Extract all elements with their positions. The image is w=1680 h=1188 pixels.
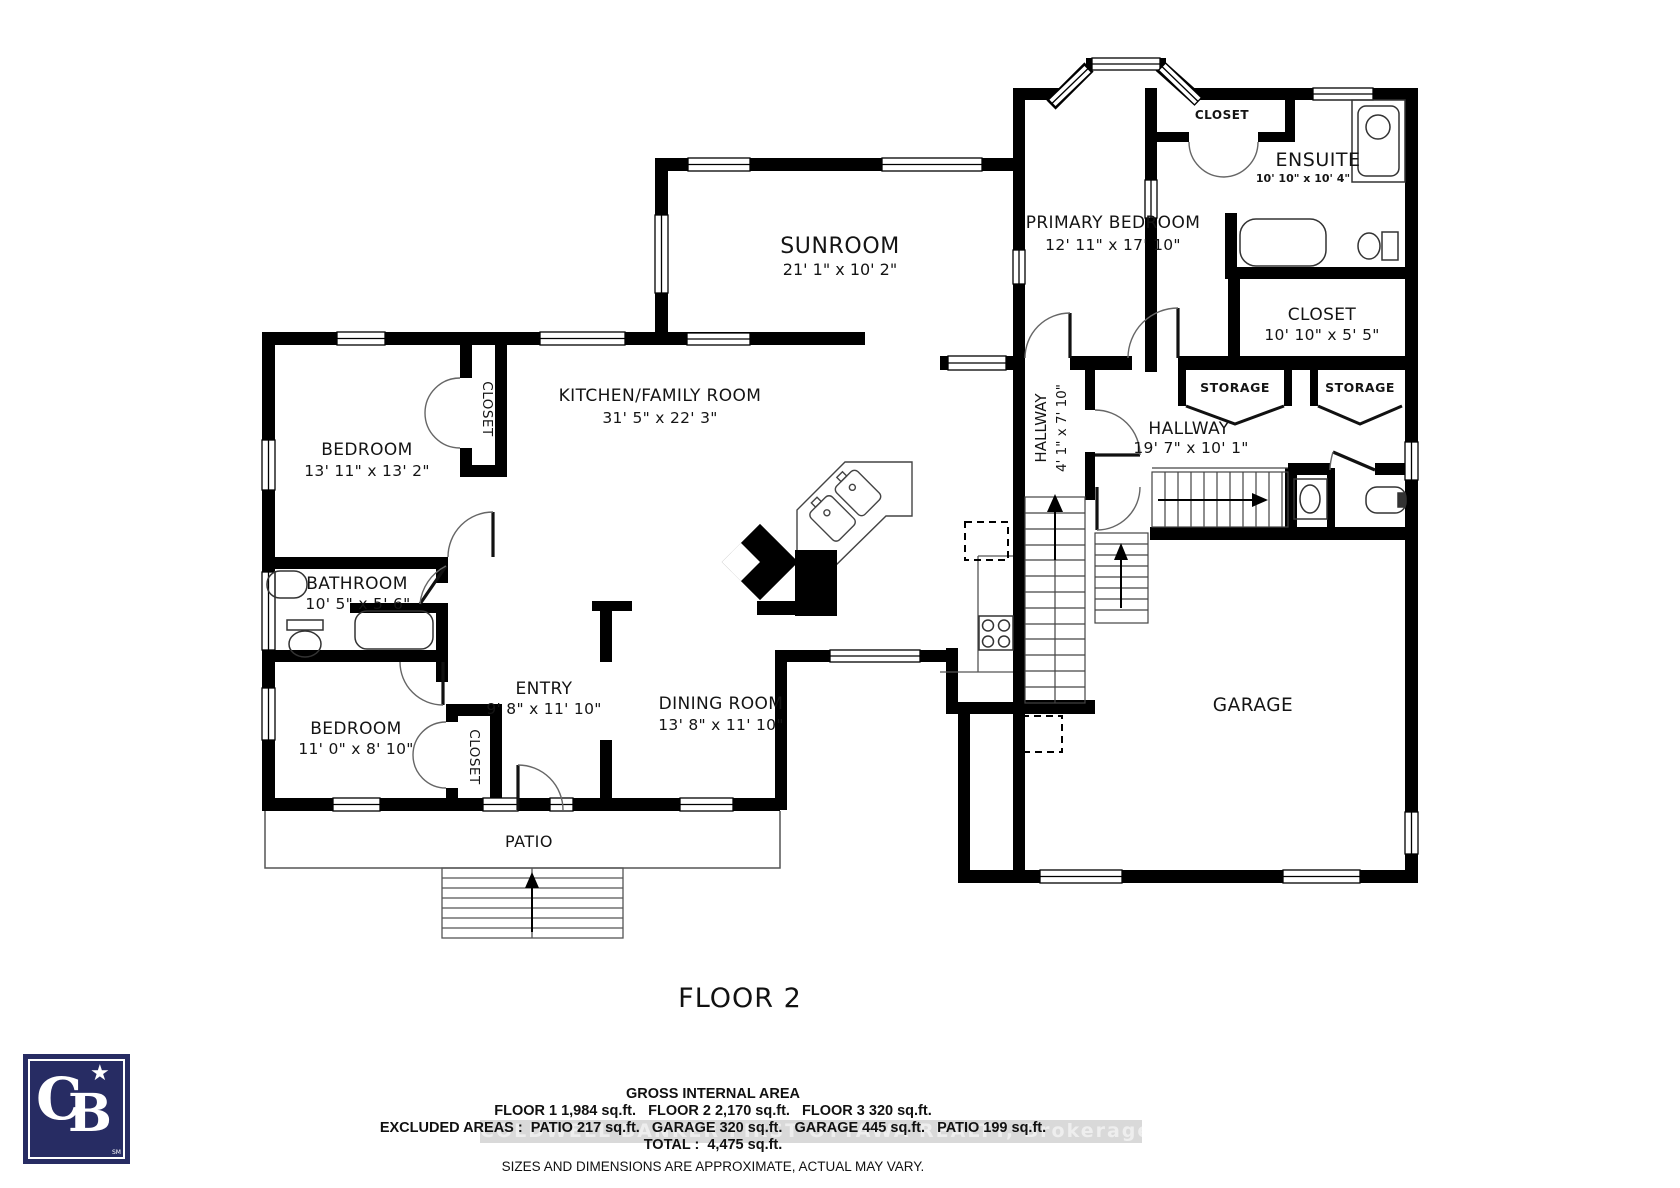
stairs-main-flight	[1025, 494, 1085, 703]
toilet-ensuite	[1358, 232, 1398, 260]
floor-areas-line: FLOOR 1 1,984 sq.ft. FLOOR 2 2,170 sq.ft…	[380, 1103, 1046, 1120]
ensuite-label: ENSUITE	[1276, 149, 1361, 171]
bedroom-upper-dims: 13' 11" x 13' 2"	[304, 462, 430, 480]
toilet-laundry	[1294, 479, 1327, 519]
bedroom-lower-closet-label: CLOSET	[466, 729, 482, 785]
bathroom-label: BATHROOM	[306, 574, 408, 594]
area-summary: GROSS INTERNAL AREA FLOOR 1 1,984 sq.ft.…	[380, 1086, 1046, 1175]
windows	[262, 58, 1418, 883]
hallway-small-dims: 4' 1" x 7' 10"	[1054, 384, 1070, 472]
sunroom-dims: 21' 1" x 10' 2"	[783, 260, 897, 279]
bedroom-upper-closet-label: CLOSET	[479, 381, 495, 437]
primary-bedroom-dims: 12' 11" x 17' 10"	[1045, 236, 1181, 254]
walkin-closet-dims: 10' 10" x 5' 5"	[1264, 326, 1379, 344]
coldwell-banker-logo: C ★ B SM	[23, 1054, 130, 1164]
logo-border: C ★ B SM	[28, 1059, 125, 1159]
logo-sm-mark: SM	[112, 1149, 121, 1156]
bathroom-dims: 10' 5" x 5' 6"	[305, 595, 410, 613]
floor-plan-drawing: SUNROOM 21' 1" x 10' 2" PRIMARY BEDROOM …	[0, 0, 1680, 1188]
storage-right-label: STORAGE	[1325, 380, 1395, 395]
ensuite-dims: 10' 10" x 10' 4"	[1256, 172, 1350, 185]
primary-bedroom-label: PRIMARY BEDROOM	[1026, 213, 1201, 233]
kitchen-family-dims: 31' 5" x 22' 3"	[602, 409, 717, 427]
ensuite-closet-label: CLOSET	[1195, 108, 1250, 122]
logo-letter-b: B	[68, 1083, 112, 1144]
floor-plan-page: SUNROOM 21' 1" x 10' 2" PRIMARY BEDROOM …	[0, 0, 1680, 1188]
stove	[979, 616, 1013, 650]
storage-right-doors	[1318, 406, 1402, 424]
bedroom-lower-label: BEDROOM	[310, 719, 402, 739]
sunroom-label: SUNROOM	[780, 234, 900, 259]
stairs-hallway-flight	[1152, 468, 1288, 527]
bathtub-bathroom	[355, 611, 433, 649]
entry-label: ENTRY	[516, 679, 573, 699]
floor-title: FLOOR 2	[678, 983, 802, 1014]
dining-room-dims: 13' 8" x 11' 10"	[658, 716, 784, 734]
bathtub-ensuite	[1240, 219, 1326, 266]
excluded-areas-line: EXCLUDED AREAS : PATIO 217 sq.ft. GARAGE…	[380, 1120, 1046, 1137]
total-area-line: TOTAL : 4,475 sq.ft.	[380, 1137, 1046, 1154]
sink-laundry	[1366, 487, 1406, 513]
walkin-closet-label: CLOSET	[1288, 305, 1357, 325]
garage-label: GARAGE	[1213, 695, 1293, 716]
storage-left-label: STORAGE	[1200, 380, 1270, 395]
gross-internal-area-title: GROSS INTERNAL AREA	[380, 1086, 1046, 1103]
dashed-appliance-garage	[1022, 716, 1062, 752]
patio-steps	[442, 868, 623, 938]
hallway-small-label: HALLWAY	[1032, 393, 1050, 463]
dashed-appliance-kitchen	[965, 522, 1008, 560]
stairs-lower-flight	[1095, 533, 1148, 623]
hallway-main-dims: 19' 7" x 10' 1"	[1133, 439, 1248, 457]
patio-label: PATIO	[505, 832, 553, 851]
fireplace	[722, 524, 837, 616]
walls	[262, 58, 1418, 883]
kitchen-family-label: KITCHEN/FAMILY ROOM	[559, 386, 762, 406]
hallway-main-label: HALLWAY	[1148, 419, 1229, 439]
entry-dims: 9' 8" x 11' 10"	[486, 700, 601, 718]
dining-room-label: DINING ROOM	[659, 694, 784, 714]
bedroom-upper-label: BEDROOM	[321, 440, 413, 460]
disclaimer: SIZES AND DIMENSIONS ARE APPROXIMATE, AC…	[380, 1158, 1046, 1175]
bedroom-lower-dims: 11' 0" x 8' 10"	[298, 740, 413, 758]
